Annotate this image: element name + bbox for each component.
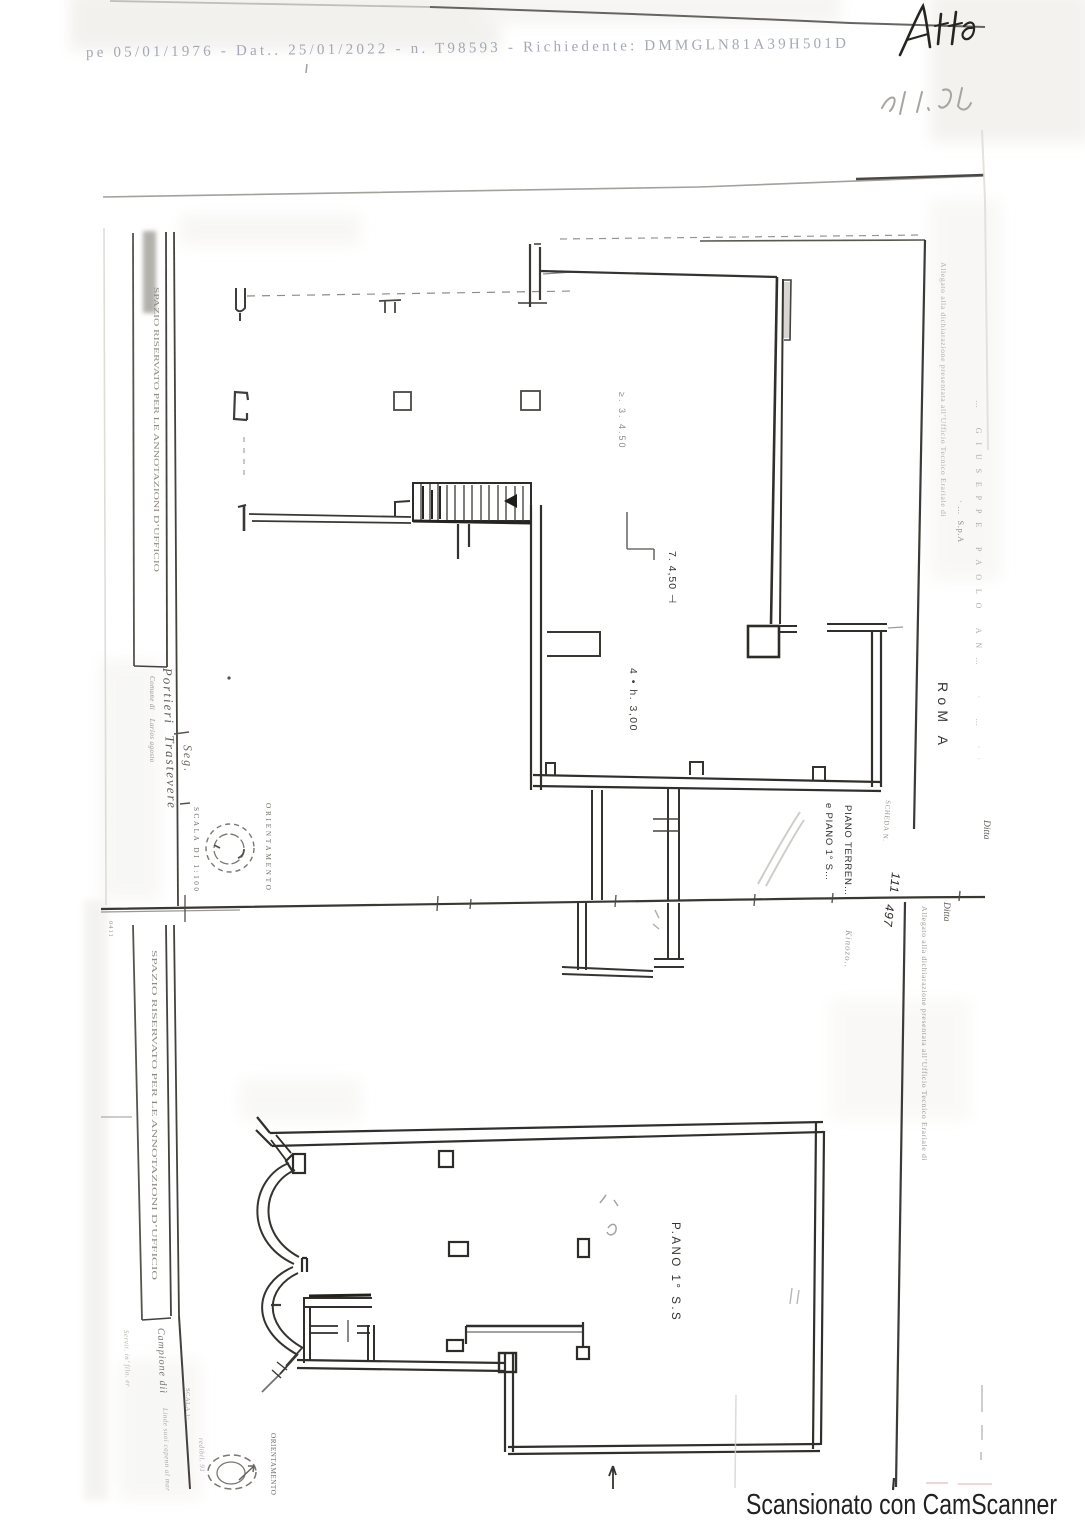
svg-text:111: 111	[887, 872, 903, 895]
svg-text:Scansionato con CamScanner: Scansionato con CamScanner	[746, 1489, 1057, 1521]
svg-text:Ditta: Ditta	[941, 901, 951, 922]
svg-text:RoM A: RoM A	[935, 682, 951, 746]
svg-text:Seg.: Seg.	[179, 700, 196, 774]
svg-text:Campione diì: Campione diì	[155, 1328, 168, 1395]
svg-text:0411: 0411	[107, 921, 114, 938]
svg-text:Allegato alla dichiarazione pr: Allegato alla dichiarazione presentata a…	[920, 906, 929, 1161]
svg-text:Allegato alla dichiarazione pr: Allegato alla dichiarazione presentata a…	[939, 262, 948, 517]
svg-text:PIANO TERREN…: PIANO TERREN…	[842, 805, 853, 896]
svg-text:Ditta: Ditta	[981, 819, 991, 840]
svg-text:SPAZIO RISERVATO PER LE ANNOTA: SPAZIO RISERVATO PER LE ANNOTAZIONI D’UF…	[150, 950, 159, 1281]
svg-text:redibil. 91: redibil. 91	[197, 1438, 206, 1473]
svg-text:ORIENTAMENTO: ORIENTAMENTO	[269, 1433, 277, 1495]
svg-text:e PIANO 1° S…: e PIANO 1° S…	[823, 803, 834, 881]
svg-text:Comune di Lurios agosto: Comune di Lurios agosto	[148, 676, 156, 763]
svg-text:P.ANO 1° S.S: P.ANO 1° S.S	[669, 1222, 681, 1322]
svg-text:4 • h. 3,00: 4 • h. 3,00	[627, 668, 639, 732]
svg-text:497: 497	[881, 904, 897, 929]
svg-text:≥. 3. 4.50: ≥. 3. 4.50	[617, 392, 627, 449]
svg-text:SCALA 1:: SCALA 1:	[184, 1388, 191, 1420]
svg-text:SPAZIO RISERVATO PER LE ANNOTA: SPAZIO RISERVATO PER LE ANNOTAZIONI D’UF…	[152, 287, 161, 573]
svg-text:7. 4,50 ⊣: 7. 4,50 ⊣	[666, 551, 678, 604]
svg-text:Kinozo..: Kinozo..	[843, 929, 854, 968]
svg-text:· … S.p.A: · … S.p.A	[956, 500, 965, 543]
